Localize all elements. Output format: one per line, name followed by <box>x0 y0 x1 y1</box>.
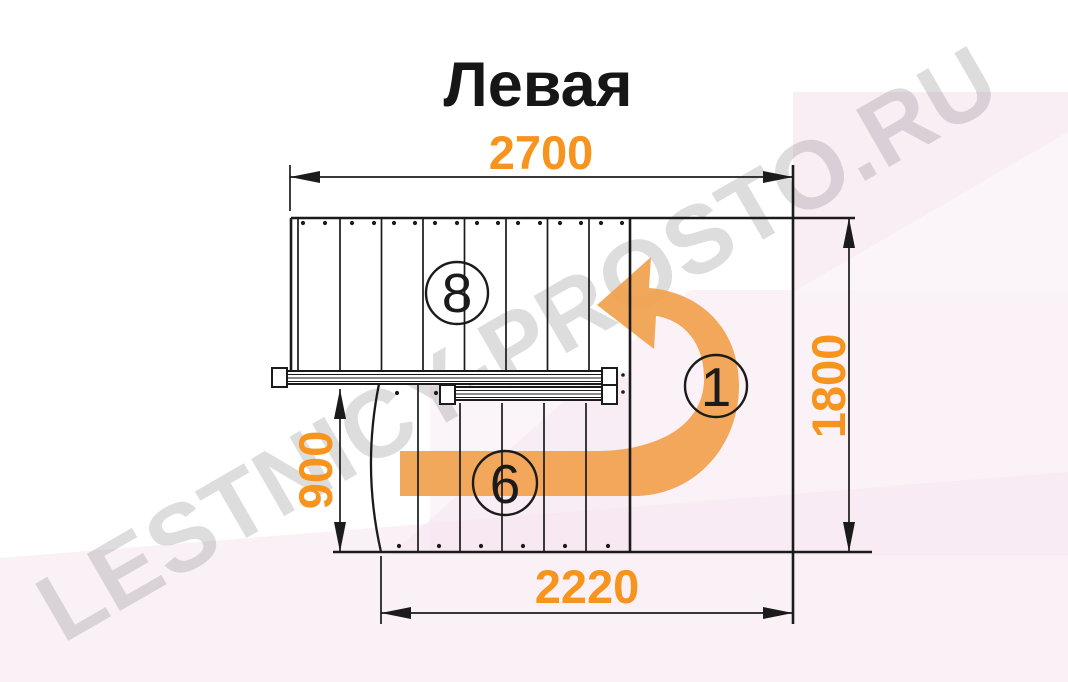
beam-cap <box>440 385 455 404</box>
dimension-arrowhead <box>290 171 320 183</box>
staircase-plan-svg: LESTNICY-PROSTO.RU <box>0 0 1068 682</box>
page-title: Левая <box>444 50 633 120</box>
step-badge-lower: 6 <box>490 453 521 515</box>
dimension-label-top: 2700 <box>489 126 594 179</box>
step-badge-upper: 8 <box>442 262 473 324</box>
beam-cap <box>272 368 287 387</box>
dimension-label-bottom: 2220 <box>535 560 640 613</box>
beam-cap <box>602 385 617 404</box>
dimension-label-left: 900 <box>289 431 342 509</box>
dimension-label-right: 1800 <box>802 334 855 439</box>
step-badge-start: 1 <box>701 356 732 418</box>
staircase-plan-canvas: LESTNICY-PROSTO.RU <box>0 0 1068 682</box>
